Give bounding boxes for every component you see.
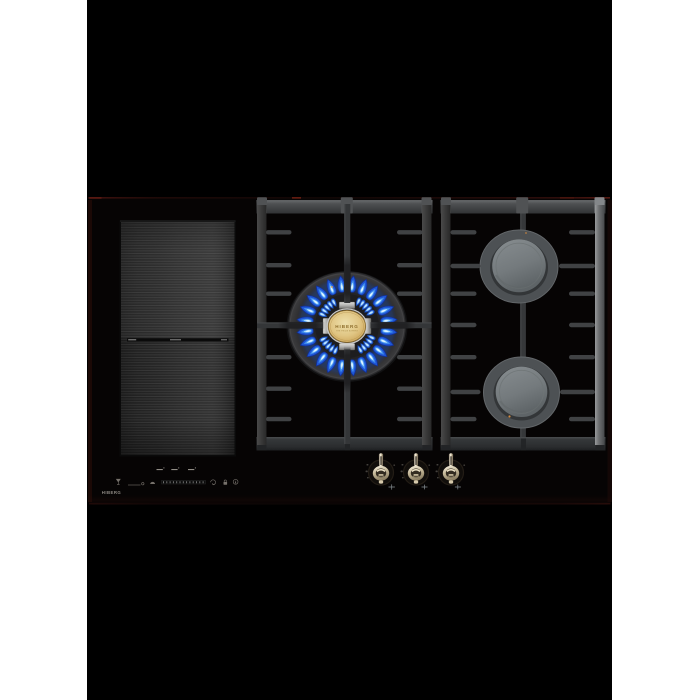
svg-text:HIBERG: HIBERG: [102, 490, 122, 495]
svg-text:HIBERG: HIBERG: [335, 324, 359, 329]
svg-text:THE PRIDE EXPERT: THE PRIDE EXPERT: [336, 330, 359, 332]
